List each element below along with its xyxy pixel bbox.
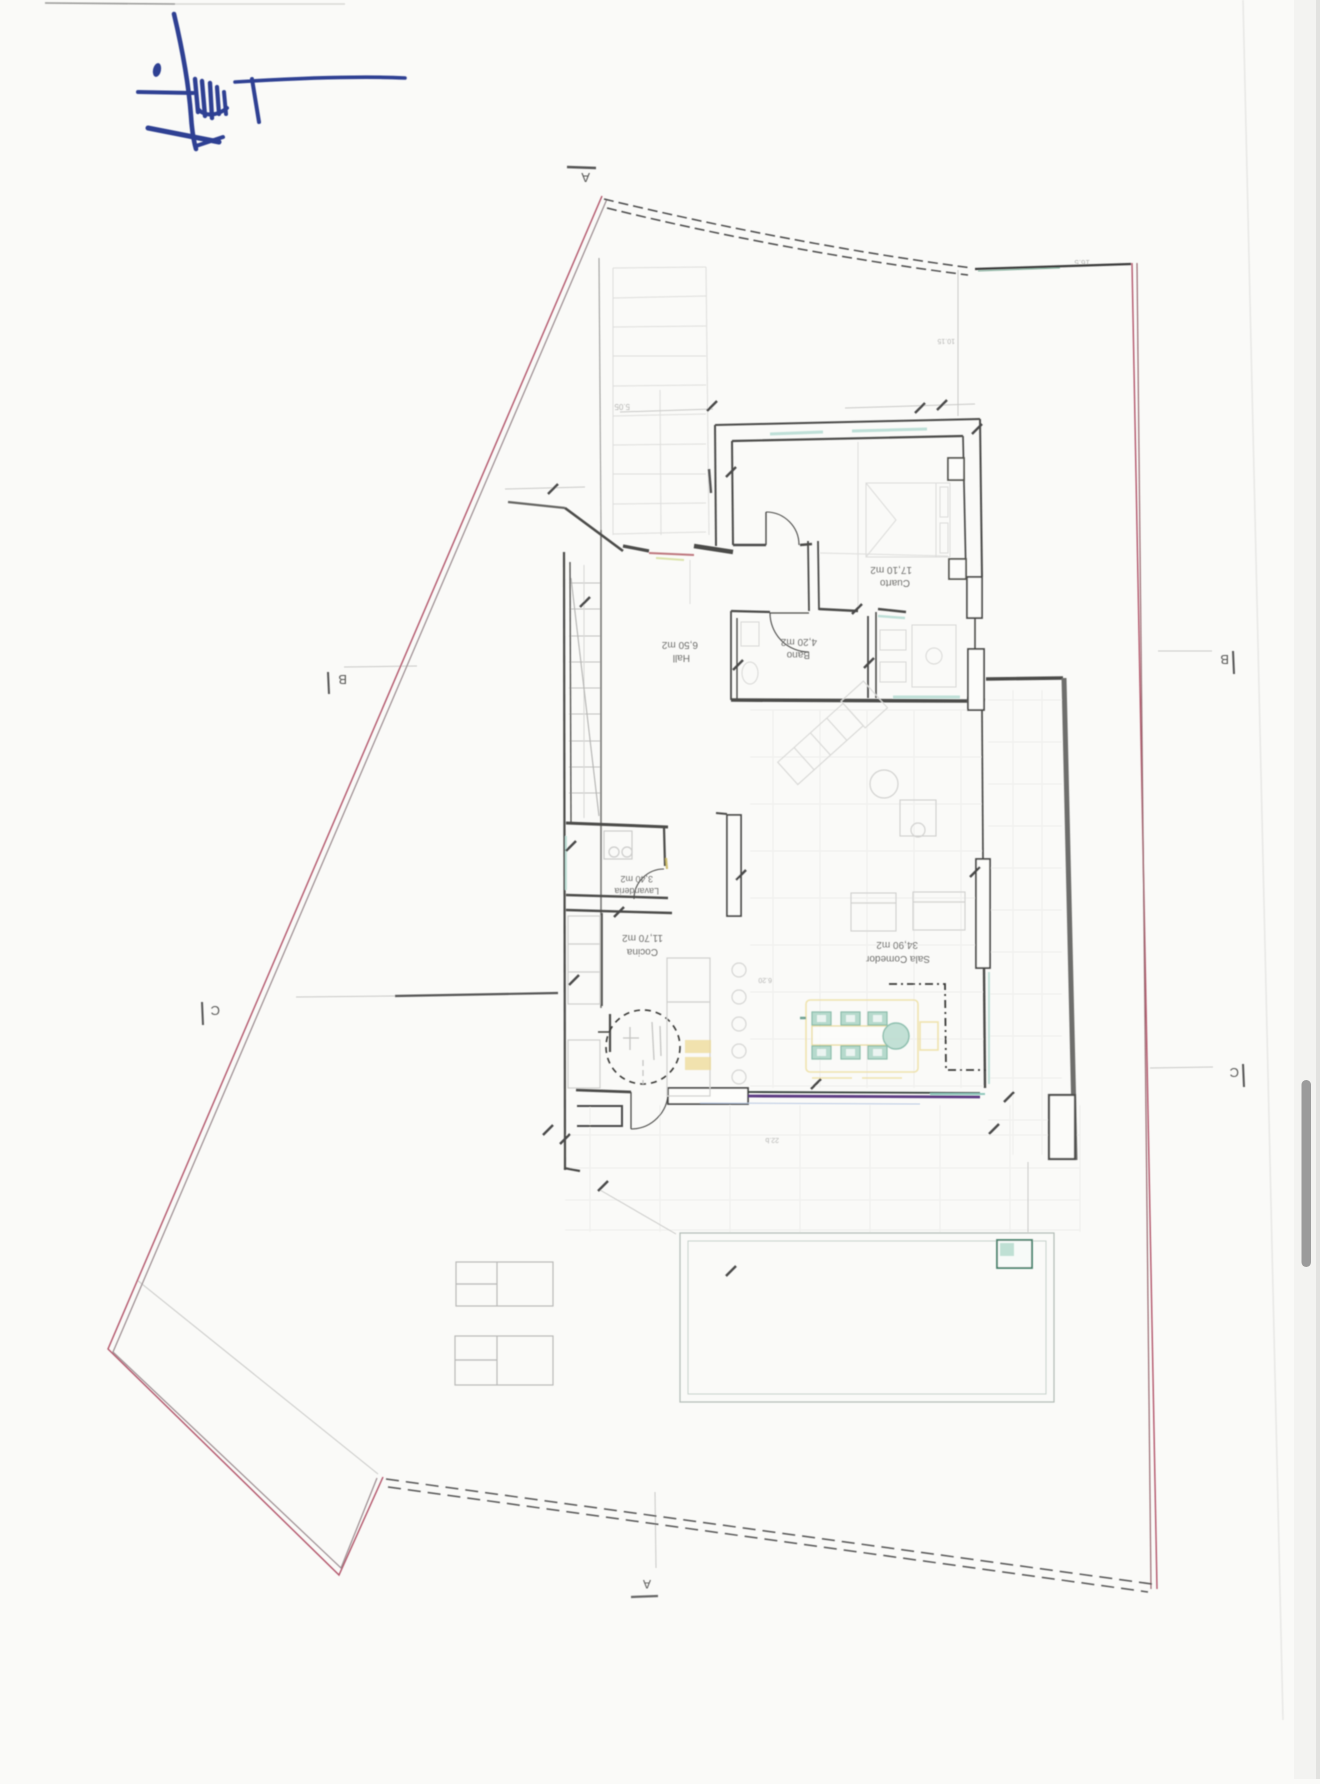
svg-text:Hall: Hall [673,652,690,663]
svg-text:Cocina: Cocina [626,946,658,957]
svg-text:22.b: 22.b [765,1136,779,1143]
svg-text:6,50 m2: 6,50 m2 [661,639,698,650]
svg-text:6.20: 6.20 [758,976,772,983]
svg-text:10.15: 10.15 [937,337,955,344]
svg-text:C: C [211,1003,220,1018]
svg-text:11,70 m2: 11,70 m2 [622,932,663,943]
svg-text:A: A [643,1577,651,1591]
svg-text:Sala Comedor: Sala Comedor [865,953,930,964]
svg-text:Cuarto: Cuarto [880,577,910,588]
svg-text:B: B [1220,652,1229,667]
svg-text:A: A [581,170,590,185]
svg-text:34,90 m2: 34,90 m2 [876,939,918,950]
svg-text:5.05: 5.05 [614,402,630,411]
svg-text:Lavanderia: Lavanderia [614,886,659,896]
svg-text:3,40 m2: 3,40 m2 [620,874,653,884]
svg-text:Bano: Bano [786,649,810,660]
svg-text:B: B [338,672,347,687]
svg-text:C: C [1230,1065,1239,1080]
svg-text:17,10 m2: 17,10 m2 [870,564,912,575]
svg-text:4,20 m2: 4,20 m2 [780,636,817,647]
